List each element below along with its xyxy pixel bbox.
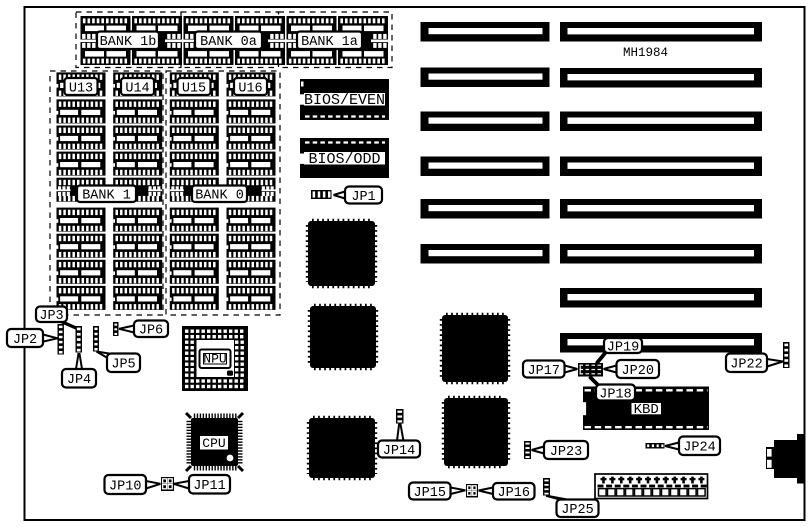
svg-text:KBD: KBD (634, 402, 659, 418)
svg-text:JP17: JP17 (528, 364, 560, 379)
svg-text:U13: U13 (69, 81, 93, 96)
svg-text:JP20: JP20 (622, 364, 654, 379)
svg-text:JP11: JP11 (193, 479, 225, 494)
svg-text:MH1984: MH1984 (623, 46, 668, 60)
svg-text:CPU: CPU (202, 436, 225, 451)
svg-text:BANK 0: BANK 0 (195, 189, 244, 204)
svg-text:JP19: JP19 (607, 340, 639, 355)
svg-text:U14: U14 (125, 81, 149, 96)
svg-text:JP2: JP2 (13, 333, 37, 348)
svg-text:BANK 1b: BANK 1b (100, 35, 157, 50)
svg-text:JP1: JP1 (351, 190, 375, 205)
svg-text:JP3: JP3 (39, 309, 63, 324)
svg-text:JP18: JP18 (599, 387, 631, 402)
svg-text:BIOS/ODD: BIOS/ODD (308, 151, 380, 168)
svg-text:BANK 1a: BANK 1a (301, 35, 358, 50)
svg-text:JP14: JP14 (383, 444, 415, 459)
svg-text:JP24: JP24 (683, 441, 715, 456)
svg-text:JP15: JP15 (414, 486, 446, 501)
svg-text:NPU: NPU (203, 352, 226, 367)
svg-text:BANK 1: BANK 1 (82, 189, 131, 204)
svg-text:JP10: JP10 (109, 479, 141, 494)
svg-text:U15: U15 (182, 81, 206, 96)
svg-text:JP4: JP4 (67, 373, 91, 388)
svg-text:JP5: JP5 (111, 358, 135, 373)
svg-text:JP16: JP16 (498, 486, 530, 501)
svg-text:U16: U16 (238, 81, 262, 96)
svg-text:JP23: JP23 (550, 445, 582, 460)
svg-text:JP25: JP25 (561, 503, 593, 518)
svg-text:BANK 0a: BANK 0a (200, 35, 257, 50)
svg-text:BIOS/EVEN: BIOS/EVEN (304, 92, 385, 109)
svg-text:JP6: JP6 (139, 324, 163, 339)
svg-text:JP22: JP22 (730, 358, 762, 373)
